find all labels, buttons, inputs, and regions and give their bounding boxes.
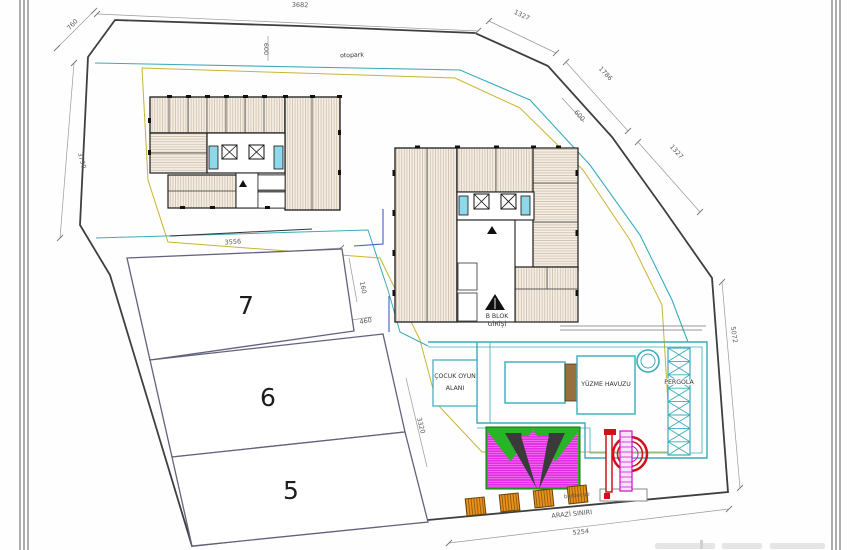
jacuzzi-circle: [637, 350, 659, 372]
dim-left: 3790: [76, 152, 88, 170]
barbecue-square: [533, 489, 554, 508]
building-a-right-block: [285, 97, 340, 210]
dim-top-left: 760: [65, 17, 79, 32]
play-area-label-1: ÇOCUK OYUN: [434, 373, 476, 380]
dim-ne3: 600: [572, 108, 586, 123]
pool-bridge: [565, 364, 577, 401]
building-a: [150, 97, 343, 237]
slide-tube-cap: [604, 429, 616, 435]
barbecue-square: [499, 493, 520, 512]
pergola-label: PERGOLA: [664, 379, 694, 386]
building-b-right-wing: [533, 148, 578, 271]
parcel-5-label: 5: [283, 476, 299, 505]
walkway-blue-line: [354, 209, 389, 332]
dim-bottom: 5254: [572, 527, 589, 537]
site-plan-sheet: 3682 760 3790 600 1327 1786 600 1327 507…: [0, 0, 850, 550]
otopark-label: otopark: [340, 52, 364, 60]
slide-structure: [600, 429, 647, 501]
building-a-room-2: [258, 192, 285, 208]
building-b-room-1: [458, 263, 477, 290]
parcel-6-label: 6: [260, 383, 276, 412]
building-b-top-rooms: [457, 148, 534, 192]
arazi-siniri-label: ARAZİ SINIRI: [551, 507, 593, 520]
b-blok-label-1: B BLOK: [486, 313, 510, 320]
pool-left-basin: [505, 362, 565, 403]
b-blok-label-2: GİRİŞİ: [488, 319, 507, 328]
building-a-corridor: [236, 173, 258, 208]
dim-ne2: 1786: [597, 65, 614, 82]
dim-parcel7-top: 3556: [224, 238, 241, 247]
building-b: B BLOK GİRİŞİ: [394, 147, 578, 328]
play-area-label-2: ALANI: [446, 385, 465, 392]
dim-parcel7-right: 160: [358, 281, 368, 295]
building-b-lower-right: [515, 267, 578, 322]
lift-car: [459, 196, 468, 215]
barbecue-square: [465, 497, 486, 516]
path-lines: [560, 326, 706, 330]
dim-jog: 460: [359, 316, 373, 326]
dim-pool-side: 3320: [415, 417, 427, 435]
lift-car: [521, 196, 530, 215]
building-a-core: [207, 133, 285, 173]
watermark-smudge: [655, 540, 825, 549]
building-b-left-wing: [395, 148, 457, 322]
building-a-room-1: [258, 175, 285, 190]
pool-label: YÜZME HAVUZU: [580, 379, 631, 388]
building-a-top-band: [150, 97, 285, 133]
slide-tube: [606, 434, 612, 492]
site-plan-drawing: 3682 760 3790 600 1327 1786 600 1327 507…: [0, 0, 850, 550]
play-area-box: [433, 360, 477, 406]
dim-ne4: 1327: [668, 143, 685, 161]
parcels: 7 6 5: [127, 249, 428, 546]
slide-foot: [604, 493, 610, 499]
tent-canopy: [486, 427, 580, 489]
dim-otopark-width: 600: [262, 43, 270, 55]
building-b-room-2: [458, 293, 477, 321]
dim-ne1: 1327: [513, 8, 531, 22]
lift-car: [209, 146, 218, 169]
lift-car: [274, 146, 283, 169]
dim-right: 5072: [729, 326, 739, 343]
parcel-7-label: 7: [238, 291, 254, 320]
dim-top: 3682: [292, 1, 309, 10]
